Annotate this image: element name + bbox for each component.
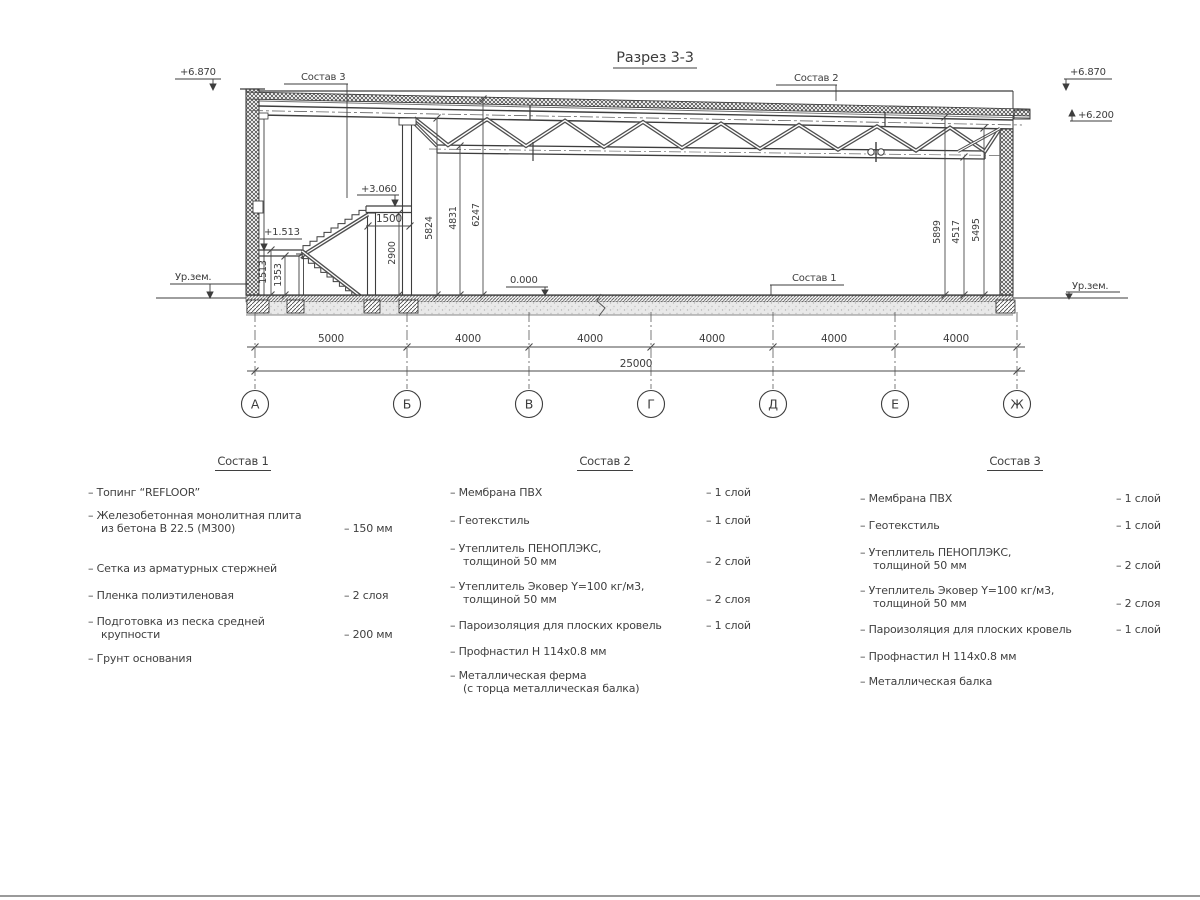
elevation-platform: +3.060 <box>361 184 397 195</box>
list-item: – Металлическая балка <box>860 675 1192 688</box>
list-item: – Утеплитель ПЕНОПЛЭКС, толщиной 50 мм– … <box>860 546 1192 572</box>
span-dim-1: 4000 <box>455 333 481 345</box>
dimension-lines <box>247 96 1025 375</box>
elevation-landing: +1.513 <box>264 227 300 238</box>
axis-d: Д <box>768 397 778 412</box>
drawing-sheet: Разрез 3-3 Состав 3 Состав 2 Состав 1 +6… <box>0 0 1200 900</box>
wall-embed-plate <box>253 201 263 213</box>
list-item: – Топинг “REFLOOR” <box>88 486 420 499</box>
stair-upper-flight <box>296 206 368 257</box>
span-dim-5: 4000 <box>943 333 969 345</box>
elevation-roof-right: +6.200 <box>1078 110 1114 121</box>
right-wall <box>1000 129 1013 295</box>
list-item: – Профнастил Н 114х0.8 мм <box>860 650 1192 663</box>
list-item: – Утеплитель Эковер Y=100 кг/м3, толщино… <box>860 584 1192 610</box>
elevation-top-left: +6.870 <box>180 67 216 78</box>
elevation-top-right: +6.870 <box>1070 67 1106 78</box>
building-structure <box>156 89 1128 316</box>
dim-2900: 2900 <box>387 241 398 265</box>
list-item: – Грунт основания <box>88 652 420 665</box>
axis-b: Б <box>403 397 411 412</box>
list-item: – Геотекстиль– 1 слой <box>450 514 782 527</box>
section-drawing: Разрез 3-3 Состав 3 Состав 2 Состав 1 +6… <box>0 0 1200 445</box>
composition-list-1: Состав 1 – Топинг “REFLOOR” – Железобето… <box>88 455 420 665</box>
list-item: – Утеплитель Эковер Y=100 кг/м3, толщино… <box>450 580 782 606</box>
leader-sostav3: Состав 3 <box>301 72 345 83</box>
list-item: – Геотекстиль– 1 слой <box>860 519 1192 532</box>
floor-slab <box>246 294 1013 316</box>
dim-4517: 4517 <box>951 220 962 244</box>
sheet-border-line <box>0 895 1200 897</box>
leader-sostav1: Состав 1 <box>792 273 836 284</box>
list-item: – Мембрана ПВХ– 1 слой <box>860 492 1192 505</box>
list-item: – Сетка из арматурных стержней <box>88 562 420 575</box>
composition-list-2: Состав 2 – Мембрана ПВХ– 1 слой – Геотек… <box>450 455 782 695</box>
leader-sostav2: Состав 2 <box>794 73 838 84</box>
dim-6247: 6247 <box>471 203 482 227</box>
ground-level-left: Ур.зем. <box>175 272 211 283</box>
dim-5495: 5495 <box>971 218 982 242</box>
list-item: – Мембрана ПВХ– 1 слой <box>450 486 782 499</box>
list-item: – Профнастил Н 114х0.8 мм <box>450 645 782 658</box>
axis-zh: Ж <box>1010 397 1024 412</box>
composition-3-title: Состав 3 <box>860 455 1192 468</box>
span-dim-3: 4000 <box>699 333 725 345</box>
composition-1-title: Состав 1 <box>88 455 420 468</box>
axis-v: В <box>525 397 533 412</box>
drawing-title: Разрез 3-3 <box>616 50 693 66</box>
axis-a: А <box>251 397 260 412</box>
axis-g: Г <box>647 397 654 412</box>
dim-1500: 1500 <box>376 213 402 225</box>
span-dim-0: 5000 <box>318 333 344 345</box>
composition-list-3: Состав 3 – Мембрана ПВХ– 1 слой – Геотек… <box>860 455 1192 688</box>
axis-e: Е <box>891 397 899 412</box>
dim-1353: 1353 <box>273 263 284 287</box>
elevation-floor: 0.000 <box>510 275 538 286</box>
dim-1513: 1513 <box>258 260 269 284</box>
total-dim: 25000 <box>620 358 652 370</box>
dim-4831: 4831 <box>448 206 459 230</box>
ground-level-right: Ур.зем. <box>1072 281 1108 292</box>
dim-5824: 5824 <box>424 216 435 240</box>
dim-5899: 5899 <box>932 220 943 244</box>
span-dim-2: 4000 <box>577 333 603 345</box>
list-item: – Пароизоляция для плоских кровель– 1 сл… <box>450 619 782 632</box>
list-item: – Металлическая ферма (с торца металличе… <box>450 669 782 695</box>
stair-lower-flight <box>296 251 360 296</box>
list-item: – Железобетонная монолитная плита из бет… <box>88 509 420 535</box>
composition-2-title: Состав 2 <box>450 455 782 468</box>
span-dim-4: 4000 <box>821 333 847 345</box>
list-item: – Утеплитель ПЕНОПЛЭКС, толщиной 50 мм– … <box>450 542 782 568</box>
list-item: – Подготовка из песка средней крупности–… <box>88 615 420 641</box>
list-item: – Пароизоляция для плоских кровель– 1 сл… <box>860 623 1192 636</box>
list-item: – Пленка полиэтиленовая– 2 слоя <box>88 589 420 602</box>
